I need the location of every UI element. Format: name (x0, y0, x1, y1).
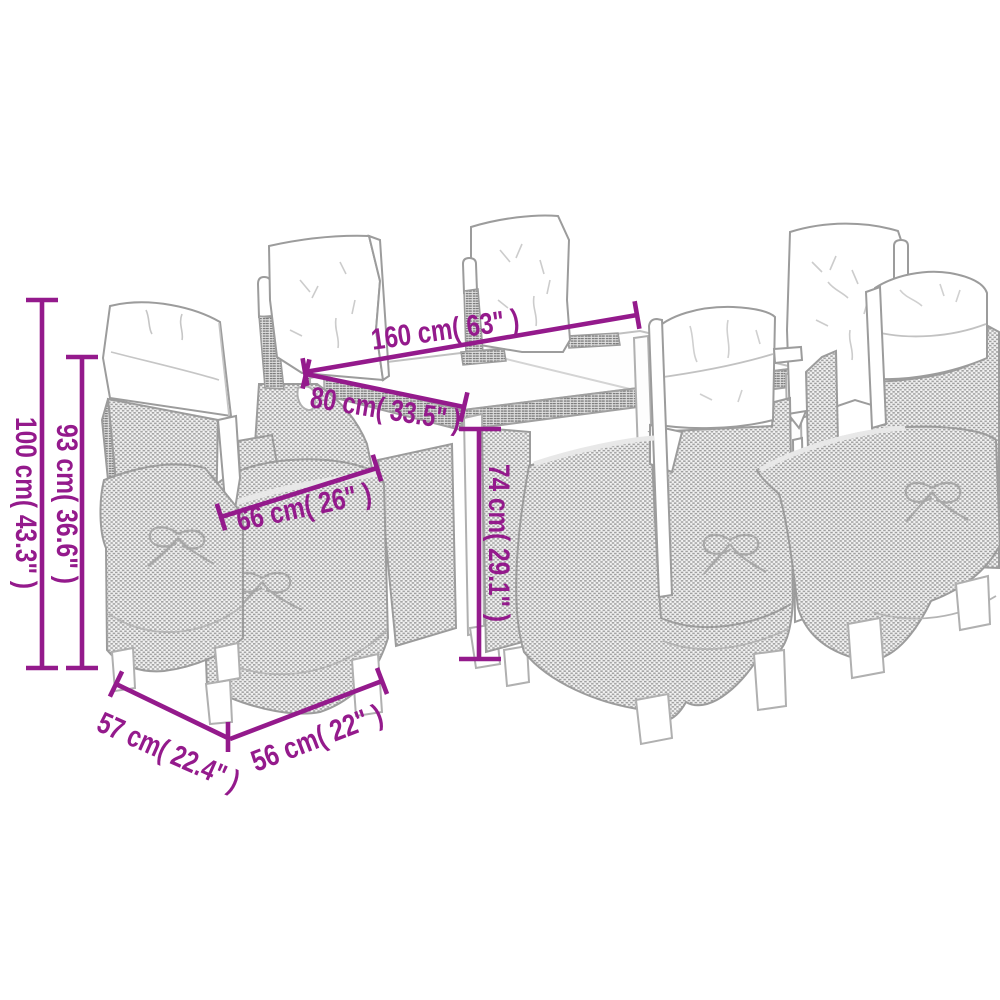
svg-text:100 cm( 43.3" ): 100 cm( 43.3" ) (9, 417, 42, 589)
svg-text:74 cm( 29.1" ): 74 cm( 29.1" ) (482, 464, 515, 622)
svg-text:93 cm( 36.6" ): 93 cm( 36.6" ) (50, 424, 83, 584)
